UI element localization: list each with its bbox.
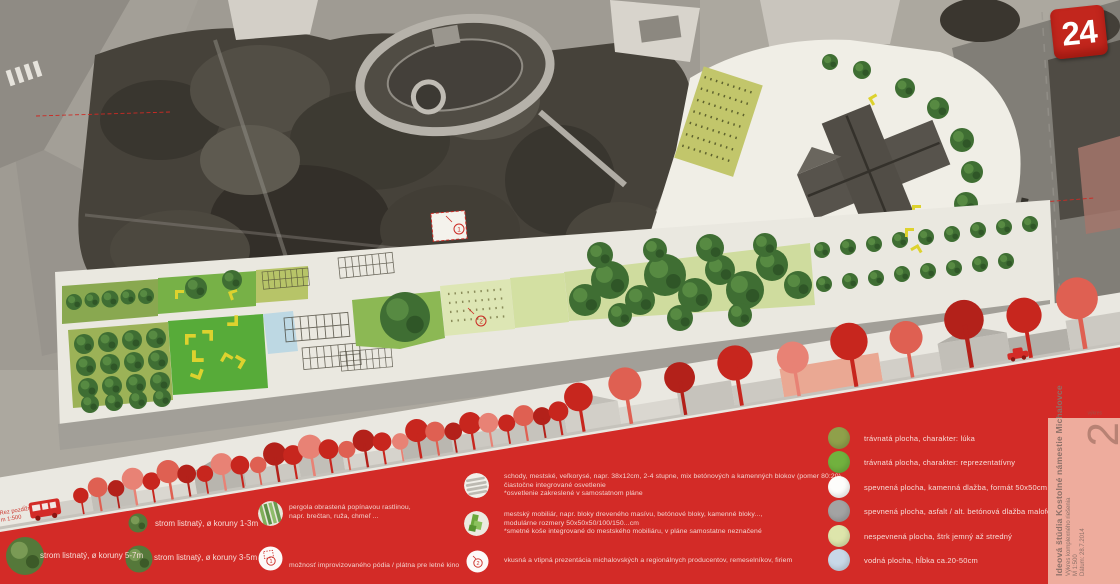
presentation-marker-number: 2 [479,319,483,326]
tree-icon-small [124,510,152,536]
drawing-subtitle: Výkres komplexného riešenia [1066,426,1072,576]
tree-legend-label-large: strom listnatý, ø koruny 5-7m [40,551,143,560]
tree-legend-label-small: strom listnatý, ø koruny 1-3m [155,519,258,528]
surface-label: nespevnená plocha, štrk jemný až stredný [864,532,1012,541]
svg-text:1: 1 [269,559,272,565]
podium-legend-text: možnosť improvizovaného pódia / plátna p… [289,562,459,571]
stairs-legend-text: schody, mestské, veľkorysé, napr. 38x12c… [504,473,843,499]
pergola-legend-text: pergola obrastená popínavou rastlinou, n… [289,504,411,521]
svg-text:2: 2 [476,561,479,567]
surface-label: trávnatá plocha, charakter: lúka [864,434,975,443]
surface-swatch-asphalt [828,500,850,522]
large-central-tree [380,292,430,342]
surface-legend-row: vodná plocha, hĺbka ca.20-50cm [828,549,978,571]
surface-legend-row: spevnená plocha, asfalt / alt. betónová … [828,500,1080,522]
surface-swatch-water [828,549,850,571]
fountain [411,80,446,115]
presentation-legend-text: vkusná a vtipná prezentácia michalovskýc… [504,557,792,566]
surface-label: vodná plocha, hĺbka ca.20-50cm [864,556,978,565]
surface-swatch-stone-paving [828,476,850,498]
logo-24-badge: 24 [1050,4,1109,59]
title-block: Ideová štúdia Kostolné námestie Michalov… [1048,418,1120,584]
tree-legend-label-medium: strom listnatý, ø koruny 3-5m [154,553,257,562]
stage-marker-number: 1 [457,227,461,234]
surface-legend-row: trávnatá plocha, charakter: lúka [828,427,975,449]
surface-swatch-gravel [828,525,850,547]
surface-legend-row: trávnatá plocha, charakter: reprezentatí… [828,451,1015,473]
podium-marker-icon: 1 [258,546,283,571]
logo-24-text: 24 [1060,12,1099,53]
surface-legend-row: nespevnená plocha, štrk jemný až stredný [828,525,1012,547]
furniture-photo-icon [464,511,489,536]
presentation-board: 1 2 [0,0,1120,584]
sheet-label: výkres [1088,411,1102,417]
surface-swatch-representative-lawn [828,451,850,473]
drawing-date: Dátum: 28.7.2014 [1080,426,1086,576]
sheet-number: 2 [1082,422,1120,446]
stage-marker: 1 [431,211,467,242]
playground-lawn [168,314,268,395]
market-plaza [440,279,515,336]
title-block-content: Ideová štúdia Kostolné námestie Michalov… [1048,418,1120,584]
surface-legend-row: spevnená plocha, kamenná dlažba, formát … [828,476,1047,498]
surface-swatch-meadow [828,427,850,449]
surface-label: trávnatá plocha, charakter: reprezentatí… [864,458,1015,467]
furniture-legend-text: mestský mobiliár, napr. bloky dreveného … [504,511,762,537]
pergola-photo-icon [258,501,283,526]
stairs-photo-icon [464,473,489,498]
presentation-marker-icon: 2 [466,550,489,573]
surface-label: spevnená plocha, kamenná dlažba, formát … [864,483,1047,492]
drawing-scale: M 1:500 [1073,426,1079,576]
project-title: Ideová štúdia Kostolné námestie Michalov… [1054,426,1064,576]
